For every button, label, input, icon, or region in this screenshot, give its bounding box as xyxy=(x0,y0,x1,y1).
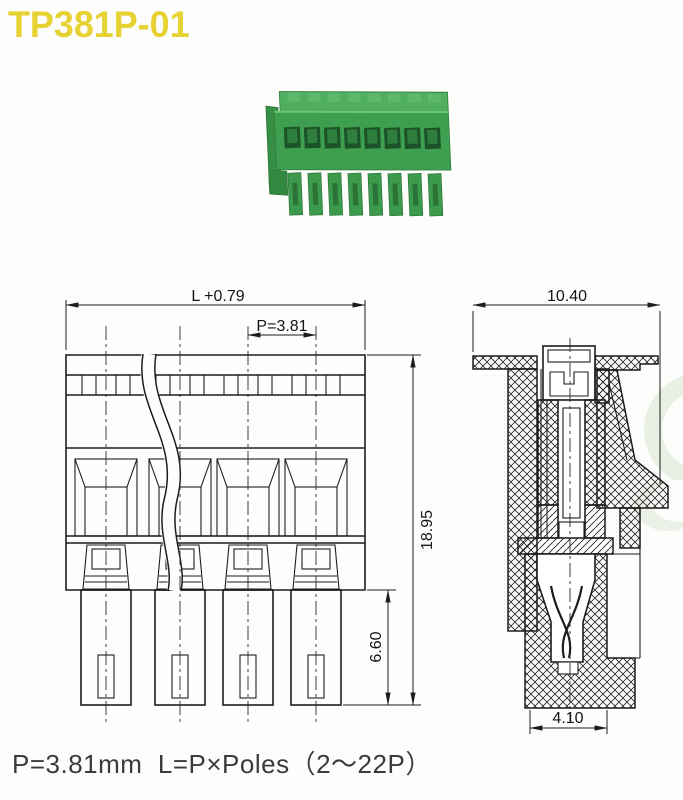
photo-front-face xyxy=(274,104,451,178)
page-title: TP381P-01 xyxy=(8,4,190,46)
section-screw-channel xyxy=(563,408,580,518)
section-flange-right xyxy=(595,356,658,370)
section-flange-left xyxy=(473,356,537,369)
dim-label-depth: 10.40 xyxy=(547,290,587,305)
section-clamp-cap xyxy=(543,346,595,400)
dimension-pitch: P=3.81 xyxy=(248,318,316,335)
section-metal-plate xyxy=(518,538,613,554)
photo-left-foot xyxy=(269,169,288,196)
photo-legs xyxy=(288,167,443,223)
dim-label-overall-width: L +0.79 xyxy=(191,290,244,305)
dim-label-pitch: P=3.81 xyxy=(256,318,307,335)
front-view-drawing: L +0.79 P=3.81 18.95 6.60 xyxy=(40,290,440,740)
dimension-total-height: 18.95 xyxy=(343,355,436,705)
latch-boxes xyxy=(83,545,339,589)
dim-label-bottom-width: 4.10 xyxy=(552,710,583,727)
footer-note: P=3.81mm L=P×Poles（2～22P） xyxy=(12,744,432,781)
dim-label-total-height: 18.95 xyxy=(419,510,436,550)
product-photo xyxy=(256,62,466,240)
plug-legs xyxy=(81,590,341,705)
dim-label-pin-length: 6.60 xyxy=(368,631,385,662)
dimension-bottom-width: 4.10 xyxy=(530,710,607,734)
side-view-drawing: 10.40 4.10 xyxy=(455,290,683,745)
dimension-overall-width: L +0.79 xyxy=(66,290,365,350)
wire-entry-funnels xyxy=(75,459,347,536)
dimension-pin-length: 6.60 xyxy=(367,590,396,705)
